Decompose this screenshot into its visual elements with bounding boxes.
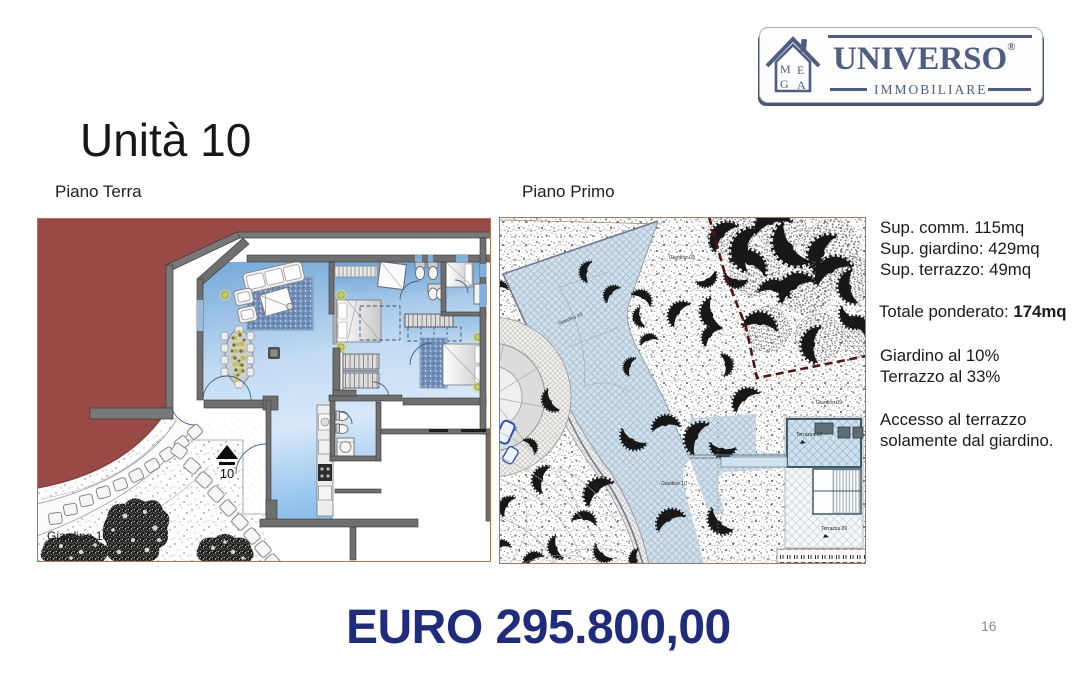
svg-text:Giardino 09: Giardino 09 (816, 400, 842, 406)
svg-text:Giardino 10: Giardino 10 (47, 529, 109, 543)
svg-text:G: G (780, 77, 789, 91)
svg-text:E: E (797, 63, 804, 77)
svg-text:M: M (780, 62, 791, 76)
svg-text:Giardino 10: Giardino 10 (661, 481, 687, 487)
svg-text:Terrazza 09: Terrazza 09 (821, 526, 847, 532)
svg-text:A: A (797, 78, 806, 92)
svg-text:Giardino 09: Giardino 09 (669, 255, 695, 261)
svg-text:10: 10 (220, 466, 234, 481)
svg-text:Terrazza 10: Terrazza 10 (796, 432, 822, 438)
